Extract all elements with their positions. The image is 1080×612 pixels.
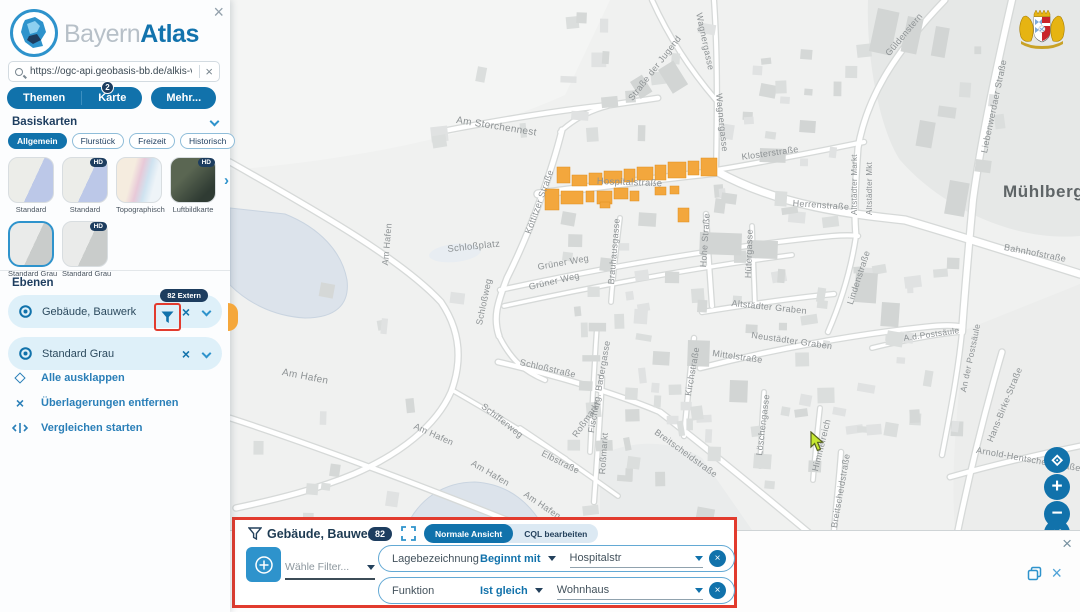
remove-filter-button[interactable]: × bbox=[709, 582, 726, 599]
thumbnail-label: Luftbildkarte bbox=[170, 205, 216, 214]
close-icon[interactable]: × bbox=[1051, 563, 1062, 584]
layer-row: Standard Grau× bbox=[8, 337, 222, 370]
remove-filter-button[interactable]: × bbox=[709, 550, 726, 567]
place-label: Mühlberg bbox=[1003, 183, 1080, 200]
karte-count-badge: 2 bbox=[101, 81, 114, 94]
filter-value-input[interactable]: Wohnhaus bbox=[557, 582, 703, 600]
zoom-in-button[interactable]: + bbox=[1044, 474, 1070, 500]
bayernatlas-app: Am StorchennestStraße der JugendWagnerga… bbox=[0, 0, 1080, 612]
thumbnail-label: Standard bbox=[62, 205, 108, 214]
filter-attribute-select[interactable]: Wähle Filter... bbox=[285, 556, 375, 580]
street-label: Hütergasse bbox=[744, 229, 755, 278]
clear-search-icon[interactable]: × bbox=[205, 64, 213, 79]
filter-field-label: Funktion bbox=[392, 585, 480, 597]
visibility-eye-icon[interactable] bbox=[18, 346, 33, 361]
basiskarten-header: Basiskarten bbox=[12, 116, 77, 128]
visibility-eye-icon[interactable] bbox=[18, 304, 33, 319]
chevron-down-icon bbox=[367, 565, 375, 570]
filter-row: FunktionIst gleichWohnhaus× bbox=[378, 577, 735, 604]
app-title: BayernAtlas bbox=[64, 20, 199, 49]
bavaria-coat-of-arms bbox=[1017, 8, 1067, 50]
filter-panel-title: Gebäude, Bauwerk bbox=[267, 527, 380, 541]
topo-thumbnail-image bbox=[116, 157, 162, 203]
layer-filter-panel: Gebäude, Bauwerk 82 Normale Ansicht CQL … bbox=[232, 517, 737, 608]
duplicate-window-icon[interactable] bbox=[1027, 566, 1042, 581]
action-close-icon[interactable]: ×Überlagerungen entfernen bbox=[12, 395, 179, 411]
layer-actions: Alle ausklappen×Überlagerungen entfernen… bbox=[12, 370, 179, 436]
add-filter-button[interactable] bbox=[246, 547, 281, 582]
basemap-thumb-luftbild[interactable]: HDLuftbildkarte bbox=[170, 157, 216, 214]
main-tabs: Themen Karte 2 Mehr... bbox=[7, 87, 216, 109]
action-expand-all-icon[interactable]: Alle ausklappen bbox=[12, 370, 179, 386]
filter-value-input[interactable]: Hospitalstr bbox=[570, 550, 704, 568]
expand-icon[interactable] bbox=[401, 526, 416, 541]
search-bar[interactable]: × bbox=[8, 61, 220, 82]
standard-thumbnail-image bbox=[8, 157, 54, 203]
basemap-categories: AllgemeinFlurstückFreizeitHistorisch bbox=[8, 133, 235, 149]
cql-edit-tab[interactable]: CQL bearbeiten bbox=[513, 524, 598, 543]
search-icon bbox=[15, 68, 23, 76]
layer-list: Gebäude, Bauwerk82 Extern×Standard Grau× bbox=[8, 295, 222, 370]
remove-layer-icon[interactable]: × bbox=[182, 346, 190, 362]
hd-badge: HD bbox=[90, 222, 107, 231]
recenter-button[interactable] bbox=[1044, 447, 1070, 473]
compare-icon bbox=[12, 421, 28, 435]
normal-view-tab[interactable]: Normale Ansicht bbox=[424, 524, 513, 543]
basemap-thumb-standard[interactable]: Standard bbox=[8, 157, 54, 214]
result-count-badge: 82 bbox=[368, 527, 392, 541]
chevron-down-icon bbox=[695, 556, 703, 561]
chevron-down-icon bbox=[695, 588, 703, 593]
extern-count-badge: 82 Extern bbox=[160, 289, 208, 302]
divider bbox=[0, 270, 230, 271]
bayernatlas-logo[interactable] bbox=[10, 9, 58, 57]
hd-badge: HD bbox=[198, 158, 215, 167]
basemap-thumb-standard[interactable]: HDStandard bbox=[62, 157, 108, 214]
action-label: Alle ausklappen bbox=[41, 372, 125, 384]
divider bbox=[199, 65, 200, 78]
basemap-thumb-topo[interactable]: Topographisch bbox=[116, 157, 162, 214]
expand-all-icon bbox=[12, 374, 28, 382]
basemap-thumbnails: StandardHDStandardTopographischHDLuftbil… bbox=[8, 157, 226, 278]
filter-annotation-box bbox=[154, 303, 181, 331]
street-label: Hospitalstraße bbox=[597, 177, 663, 189]
thumbnails-next-icon[interactable]: › bbox=[224, 172, 229, 189]
collapse-basiskarten-icon[interactable] bbox=[210, 117, 220, 127]
basemap-category-freizeit[interactable]: Freizeit bbox=[129, 133, 175, 149]
filter-operator-select[interactable]: Beginnt mit bbox=[480, 553, 541, 565]
filter-field-label: Lagebezeichnung bbox=[392, 553, 480, 565]
view-toggle: Normale Ansicht CQL bearbeiten bbox=[424, 524, 598, 543]
basemap-category-flurstück[interactable]: Flurstück bbox=[72, 133, 124, 149]
basemap-category-historisch[interactable]: Historisch bbox=[180, 133, 235, 149]
layer-row: Gebäude, Bauwerk82 Extern× bbox=[8, 295, 222, 328]
tab-themen[interactable]: Themen bbox=[7, 87, 81, 109]
grau-thumbnail-image bbox=[8, 221, 54, 267]
action-label: Vergleichen starten bbox=[41, 422, 143, 434]
filter-icon bbox=[248, 527, 262, 540]
sidebar: × BayernAtlas × Themen Karte 2 Mehr... bbox=[0, 0, 230, 612]
filter-value-text: Hospitalstr bbox=[570, 552, 696, 564]
street-label: Altstädter Markt bbox=[851, 154, 859, 215]
remove-layer-icon[interactable]: × bbox=[182, 304, 190, 320]
sidebar-close-icon[interactable]: × bbox=[213, 2, 224, 23]
street-label: Altstädter Mkt bbox=[866, 162, 874, 215]
close-icon: × bbox=[12, 395, 28, 411]
thumbnail-label: Standard bbox=[8, 205, 54, 214]
filter-panel-header: Gebäude, Bauwerk 82 Normale Ansicht CQL … bbox=[235, 520, 734, 544]
layer-filter-icon[interactable] bbox=[161, 311, 174, 324]
close-panel-icon[interactable]: × bbox=[1062, 534, 1072, 554]
filter-operator-select[interactable]: Ist gleich bbox=[480, 585, 528, 597]
action-label: Überlagerungen entfernen bbox=[41, 397, 179, 409]
thumbnail-label: Topographisch bbox=[116, 205, 162, 214]
chevron-down-icon bbox=[535, 588, 543, 593]
basemap-category-allgemein[interactable]: Allgemein bbox=[8, 133, 67, 149]
ebenen-header: Ebenen bbox=[12, 277, 54, 289]
filter-select-placeholder: Wähle Filter... bbox=[285, 561, 367, 573]
search-input[interactable] bbox=[28, 65, 194, 78]
action-compare-icon[interactable]: Vergleichen starten bbox=[12, 420, 179, 436]
filter-row: LagebezeichnungBeginnt mitHospitalstr× bbox=[378, 545, 735, 572]
chevron-down-icon bbox=[548, 556, 556, 561]
filter-value-text: Wohnhaus bbox=[557, 584, 695, 596]
tab-mehr[interactable]: Mehr... bbox=[151, 87, 216, 109]
hd-badge: HD bbox=[90, 158, 107, 167]
mouse-cursor-icon bbox=[810, 431, 826, 452]
